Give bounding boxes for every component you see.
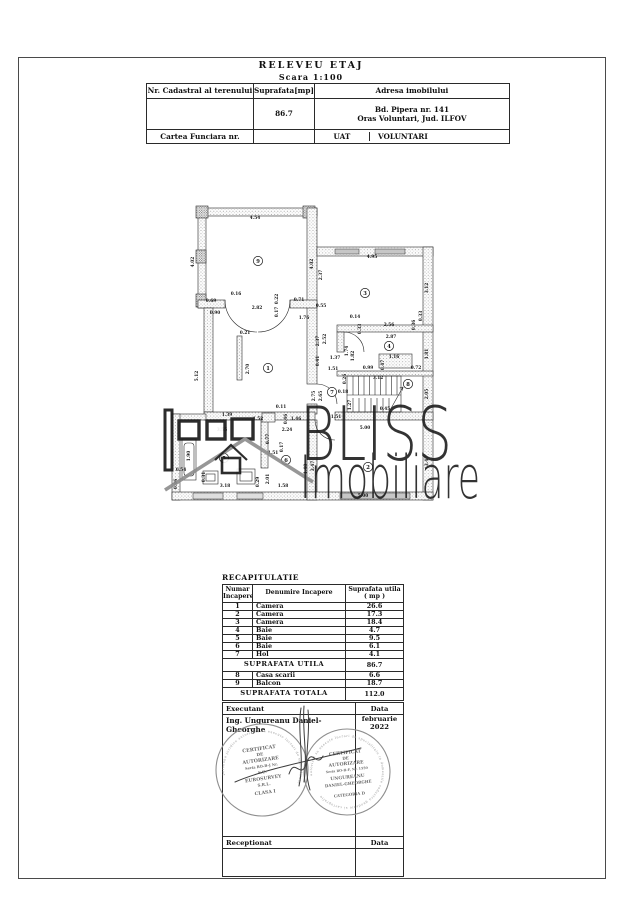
dim-label: 1.82 [351, 351, 356, 361]
svg-text:1: 1 [266, 366, 270, 372]
svg-text:9: 9 [256, 259, 260, 265]
dim-label: 0.54 [176, 468, 186, 473]
room-number: 3 [360, 288, 369, 297]
floor-plan-svg: 4.544.024.024.952.373.120.690.160.902.82… [165, 188, 483, 524]
data-label-2: Data [356, 837, 404, 849]
room-area-cell: 4.7 [346, 627, 404, 635]
table-row: SUPRAFATA UTILA86.7 [223, 659, 404, 672]
watermark-logo-bar [165, 410, 172, 470]
address-line-2: Oras Voluntari, Jud. ILFOV [315, 114, 509, 123]
dim-label: 0.47 [381, 360, 386, 370]
address-header: Adresa imobilului [314, 84, 509, 99]
recap-col-name: Denumire Incapere [253, 585, 346, 603]
receptionat-empty-cell [223, 849, 356, 877]
dim-label: 1.37 [330, 356, 340, 361]
table-row: 6Baie6.1 [223, 643, 404, 651]
dim-label: 0.33 [419, 311, 424, 321]
executant-name-row: Ing. Ungureanu Daniel-Gheorghe februarie… [223, 715, 404, 837]
dim-label: 0.90 [210, 311, 220, 316]
data-label: Data [356, 703, 404, 715]
watermark-text-imobiliare: Imobiliare [300, 443, 480, 513]
dim-label: 1.81 [425, 349, 430, 359]
dim-label: 4.95 [367, 255, 377, 260]
dim-label: 0.71 [294, 298, 304, 303]
recap-table: NumarIncapere Denumire Incapere Suprafat… [222, 584, 404, 701]
dim-label: 0.16 [231, 292, 241, 297]
surface-header: Suprafata[mp] [254, 84, 315, 99]
uat-value: VOLUNTARI [370, 132, 509, 141]
recap-col-area: Suprafata utila( mp ) [346, 585, 404, 603]
cadastral-header-row: Nr. Cadastral al terenului Suprafata[mp]… [147, 84, 510, 99]
dim-label: 4.02 [310, 259, 315, 269]
dim-label: 0.33 [358, 324, 363, 334]
room-number: 8 [403, 379, 412, 388]
room-number-cell: 9 [223, 680, 253, 688]
watermark-logo-house [222, 458, 240, 473]
recap-header-row: NumarIncapere Denumire Incapere Suprafat… [223, 585, 404, 603]
room-area-cell: 17.3 [346, 611, 404, 619]
room-number-cell: 7 [223, 651, 253, 659]
dim-label: 0.29 [256, 477, 261, 487]
room-number-cell: 2 [223, 611, 253, 619]
receptionat-date-cell [356, 849, 404, 877]
dim-label: 2.70 [246, 364, 251, 374]
dim-label: 1.74 [345, 346, 350, 356]
date-value: februarie2022 [356, 715, 404, 837]
table-row: SUPRAFATA TOTALA112.0 [223, 688, 404, 701]
empty-row [223, 849, 404, 877]
dim-label: 2.37 [316, 336, 321, 346]
room-area-cell: 18.4 [346, 619, 404, 627]
dim-label: 5.12 [195, 371, 200, 381]
room-area-cell: 18.7 [346, 680, 404, 688]
dim-label: 2.24 [282, 428, 292, 433]
room-area-cell: 9.5 [346, 635, 404, 643]
dim-label: 0.14 [350, 315, 360, 320]
room-name-cell: Balcon [253, 680, 346, 688]
room-area-cell: 6.6 [346, 672, 404, 680]
room-name-cell: Camera [253, 611, 346, 619]
land-book-row: Cartea Funciara nr. UAT VOLUNTARI [147, 130, 510, 144]
room-number-cell: 1 [223, 603, 253, 611]
receptionat-label: Receptionat [223, 837, 356, 849]
watermark-logo-square [207, 421, 225, 439]
dim-label: 0.77 [266, 434, 271, 444]
room-name-cell: Baie [253, 635, 346, 643]
svg-text:4: 4 [387, 344, 391, 350]
recap-col-number: NumarIncapere [223, 585, 253, 603]
table-row: 7Hol4.1 [223, 651, 404, 659]
cadastral-value-row: 86.7 Bd. Pipera nr. 141 Oras Voluntari, … [147, 99, 510, 130]
table-row: 2Camera17.3 [223, 611, 404, 619]
cadastral-number-value [147, 99, 254, 130]
dim-label: 2.87 [386, 335, 396, 340]
room-area-cell: 4.1 [346, 651, 404, 659]
table-row: 8Casa scarii6.6 [223, 672, 404, 680]
dim-label: 0.55 [316, 304, 326, 309]
dim-label: 3.12 [425, 283, 430, 293]
receptionat-row: Receptionat Data [223, 837, 404, 849]
document-title: RELEVEU ETAJ [18, 60, 604, 71]
svg-text:3: 3 [363, 291, 367, 297]
dim-label: 0.31 [202, 472, 207, 482]
dim-label: 1.51 [328, 367, 338, 372]
room-name-cell: Baie [253, 643, 346, 651]
dim-label: 0.22 [275, 294, 280, 304]
room-number-cell: 4 [223, 627, 253, 635]
watermark-logo-square [179, 421, 199, 439]
surface-value: 86.7 [254, 99, 315, 130]
executant-name: Ing. Ungureanu Daniel-Gheorghe [223, 715, 356, 837]
dim-label: 0.17 [280, 442, 285, 452]
dim-label: 1.39 [222, 413, 232, 418]
dim-label: 0.36 [412, 320, 417, 330]
totala-label-cell: SUPRAFATA TOTALA [223, 688, 346, 701]
room-number-cell: 5 [223, 635, 253, 643]
room-area-cell: 6.1 [346, 643, 404, 651]
room-name-cell: Baie [253, 627, 346, 635]
document-page: { "page": { "title": "RELEVEU ETAJ", "sc… [0, 0, 636, 900]
dim-label: 2.01 [266, 474, 271, 484]
cadastral-number-header: Nr. Cadastral al terenului [147, 84, 254, 99]
table-row: 4Baie4.7 [223, 627, 404, 635]
room-name-cell: Hol [253, 651, 346, 659]
table-row: 1Camera26.6 [223, 603, 404, 611]
dim-label: 4.02 [191, 257, 196, 267]
dim-label: 2.52 [323, 334, 328, 344]
address-value: Bd. Pipera nr. 141 Oras Voluntari, Jud. … [314, 99, 509, 130]
recap-body: 1Camera26.62Camera17.33Camera18.44Baie4.… [223, 603, 404, 701]
dim-label: 2.82 [252, 306, 262, 311]
executant-row: Executant Data [223, 703, 404, 715]
uat-label: UAT [315, 132, 370, 141]
exec-table: Executant Data Ing. Ungureanu Daniel-Ghe… [222, 702, 404, 877]
room-number-cell: 3 [223, 619, 253, 627]
room-area-cell: 26.6 [346, 603, 404, 611]
executant-label: Executant [223, 703, 356, 715]
dim-label: 0.72 [411, 366, 421, 371]
dim-label: 1.90 [187, 451, 192, 461]
watermark-logo-square [232, 419, 253, 439]
dim-label: 0.99 [363, 366, 373, 371]
room-number: 1 [263, 363, 272, 372]
room-number-cell: 6 [223, 643, 253, 651]
dim-label: 1.16 [389, 355, 399, 360]
table-row: 3Camera18.4 [223, 619, 404, 627]
dim-label: 3.12 [373, 376, 383, 381]
dim-label: 3.18 [220, 484, 230, 489]
dim-label: 1.58 [278, 484, 288, 489]
dim-label: 1.76 [299, 316, 309, 321]
scale-label: Scara 1:100 [18, 72, 604, 82]
dim-label: 0.21 [240, 331, 250, 336]
utila-value-cell: 86.7 [346, 659, 404, 672]
room-name-cell: Camera [253, 603, 346, 611]
recap-title: RECAPITULATIE [222, 573, 299, 582]
room-name-cell: Camera [253, 619, 346, 627]
room-number-cell: 8 [223, 672, 253, 680]
land-book-label: Cartea Funciara nr. [147, 130, 254, 144]
dim-label: 2.56 [384, 323, 394, 328]
dim-label: 0.11 [276, 405, 286, 410]
table-row: 5Baie9.5 [223, 635, 404, 643]
dim-label: 2.37 [319, 270, 324, 280]
dim-label: 0.69 [206, 299, 216, 304]
room-number: 4 [384, 341, 393, 350]
address-line-1: Bd. Pipera nr. 141 [315, 105, 509, 114]
table-row: 9Balcon18.7 [223, 680, 404, 688]
dim-label: 0.26 [343, 374, 348, 384]
dim-label: 4.54 [250, 216, 260, 221]
room-name-cell: Casa scarii [253, 672, 346, 680]
uat-cell: UAT VOLUNTARI [314, 130, 509, 144]
dim-label: 0.17 [275, 307, 280, 317]
svg-text:8: 8 [406, 382, 410, 388]
land-book-value [254, 130, 315, 144]
room-number: 9 [253, 256, 262, 265]
cadastral-table: Nr. Cadastral al terenului Suprafata[mp]… [146, 83, 510, 144]
utila-label-cell: SUPRAFATA UTILA [223, 659, 346, 672]
totala-value-cell: 112.0 [346, 688, 404, 701]
dim-label: 0.46 [284, 414, 289, 424]
dim-label: 0.41 [316, 356, 321, 366]
